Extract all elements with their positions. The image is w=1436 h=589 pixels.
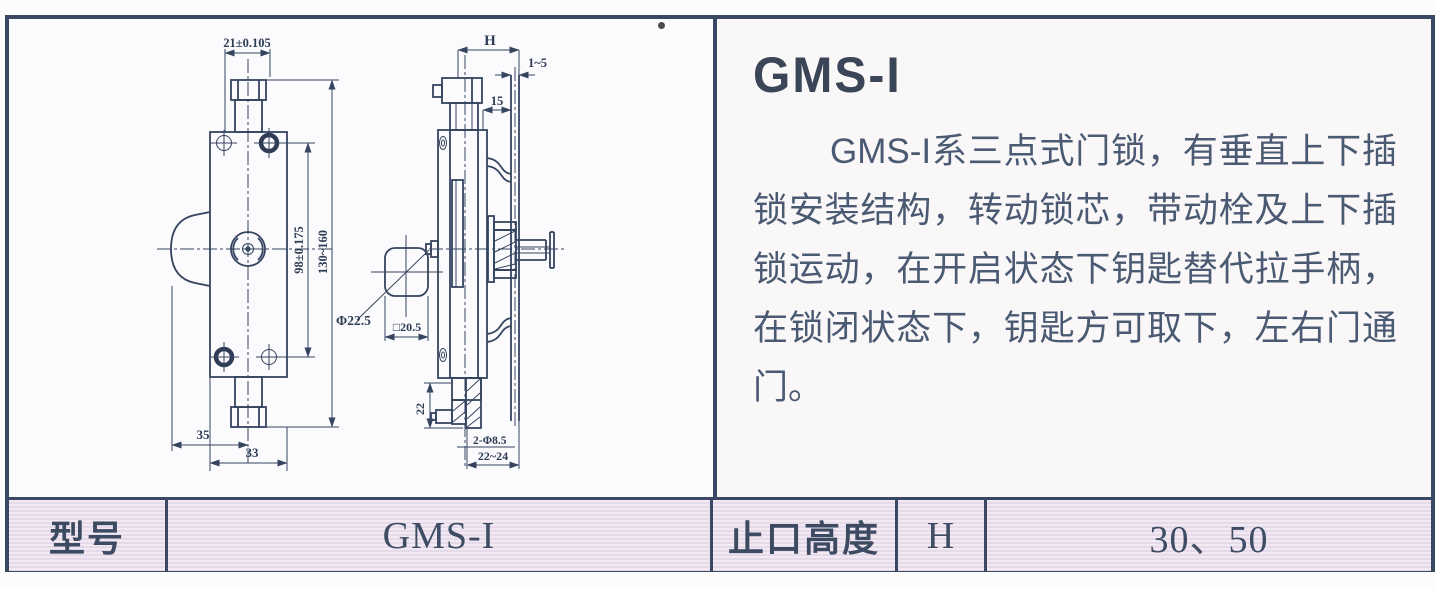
dim-square-size-label: □20.5	[393, 320, 421, 334]
dim-hole-spacing-label: 98±0.175	[292, 226, 306, 274]
spec-cell-height-label: 止口高度	[713, 500, 898, 571]
dim-rabbet-height: H	[458, 33, 519, 78]
spec-cell-model-label: 型号	[9, 500, 168, 571]
spec-cell-height-symbol: H	[898, 500, 987, 571]
dim-door-thickness-label: 1~5	[528, 56, 547, 70]
dim-bottom-length-label: 22	[413, 403, 427, 415]
dim-face-depth: 15	[483, 94, 511, 130]
dim-mount-holes-label: 2-Φ8.5	[473, 435, 507, 447]
technical-drawing-panel: 21±0.105 98±0.175	[9, 19, 717, 497]
height-values: 30、50	[1149, 508, 1268, 563]
screw-hole-bottom-left	[209, 342, 239, 372]
dim-hole-spacing: 98±0.175	[279, 143, 315, 357]
dim-body-width-label: 33	[246, 445, 260, 460]
dim-door-thickness: 1~5	[495, 56, 547, 75]
catalog-page: 21±0.105 98±0.175	[0, 0, 1436, 589]
product-title: GMS-I	[753, 47, 1397, 105]
dim-hole-pitch-label: 22~24	[478, 449, 508, 463]
dim-overall-length-label: 130~160	[316, 230, 330, 274]
dim-mount-holes: 2-Φ8.5	[457, 435, 515, 447]
spec-cell-model-value: GMS-I	[168, 500, 713, 571]
height-label: 止口高度	[728, 510, 880, 562]
dim-offset-left-label: 35	[197, 427, 211, 442]
model-label: 型号	[49, 510, 125, 562]
scan-speck	[658, 22, 665, 29]
model-value: GMS-I	[383, 514, 496, 558]
height-symbol: H	[927, 514, 955, 558]
cylinder-detail-view: Φ22.5 □20.5	[336, 235, 443, 341]
outer-frame: 21±0.105 98±0.175	[5, 15, 1435, 572]
description-panel: GMS-I GMS-I系三点式门锁，有垂直上下插锁安装结构，转动锁芯，带动栓及上…	[717, 19, 1431, 497]
side-view: H 1~5 15	[413, 33, 565, 469]
bottom-latch	[431, 378, 481, 428]
spec-table: 型号 GMS-I 止口高度 H 30、50	[9, 497, 1431, 571]
product-description: GMS-I系三点式门锁，有垂直上下插锁安装结构，转动锁芯，带动栓及上下插锁运动，…	[753, 122, 1397, 417]
dim-top-width-label: 21±0.105	[223, 36, 271, 50]
dim-bottom-length: 22	[413, 383, 463, 428]
dim-rabbet-height-label: H	[484, 33, 496, 49]
screw-hole-bottom-right	[256, 344, 282, 370]
dim-face-depth-label: 15	[491, 94, 504, 108]
content-row: 21±0.105 98±0.175	[9, 19, 1431, 497]
lock-technical-drawing: 21±0.105 98±0.175	[9, 19, 713, 497]
front-view: 21±0.105 98±0.175	[157, 36, 339, 471]
screw-hole-top-left	[211, 130, 237, 156]
spec-cell-height-values: 30、50	[987, 500, 1431, 571]
dim-cylinder-diameter-label: Φ22.5	[336, 313, 371, 328]
